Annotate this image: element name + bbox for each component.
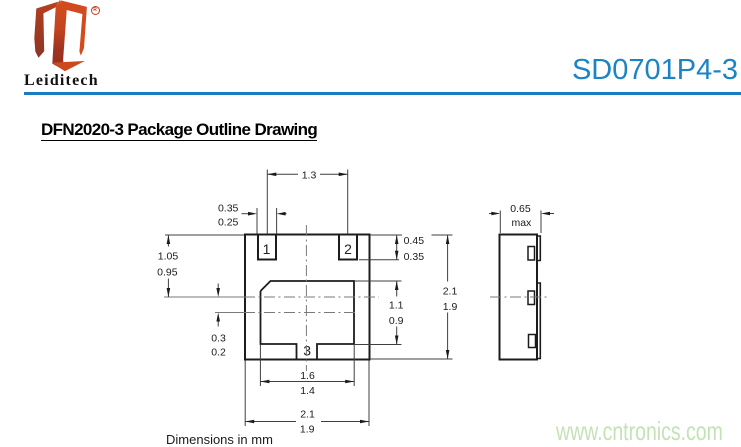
svg-text:0.25: 0.25 — [218, 217, 239, 229]
svg-text:2: 2 — [344, 241, 352, 257]
svg-text:1.9: 1.9 — [443, 301, 458, 313]
svg-text:1.4: 1.4 — [300, 385, 315, 397]
svg-text:1.6: 1.6 — [300, 370, 315, 382]
svg-text:0.65: 0.65 — [510, 203, 531, 215]
svg-text:2.1: 2.1 — [443, 286, 458, 298]
svg-text:0.35: 0.35 — [218, 203, 239, 215]
svg-text:0.2: 0.2 — [211, 347, 226, 359]
svg-text:0.45: 0.45 — [404, 235, 425, 247]
svg-text:max: max — [511, 217, 532, 229]
svg-text:0.3: 0.3 — [211, 333, 226, 345]
svg-text:1: 1 — [263, 241, 271, 257]
svg-text:0.9: 0.9 — [389, 315, 404, 327]
svg-text:3: 3 — [303, 343, 311, 359]
svg-text:1.1: 1.1 — [389, 300, 404, 312]
svg-text:2.1: 2.1 — [300, 409, 315, 421]
svg-text:1.05: 1.05 — [158, 250, 179, 262]
svg-text:1.3: 1.3 — [302, 170, 317, 182]
svg-text:0.35: 0.35 — [404, 251, 425, 263]
svg-text:1.9: 1.9 — [300, 424, 315, 436]
svg-text:0.95: 0.95 — [157, 266, 178, 278]
